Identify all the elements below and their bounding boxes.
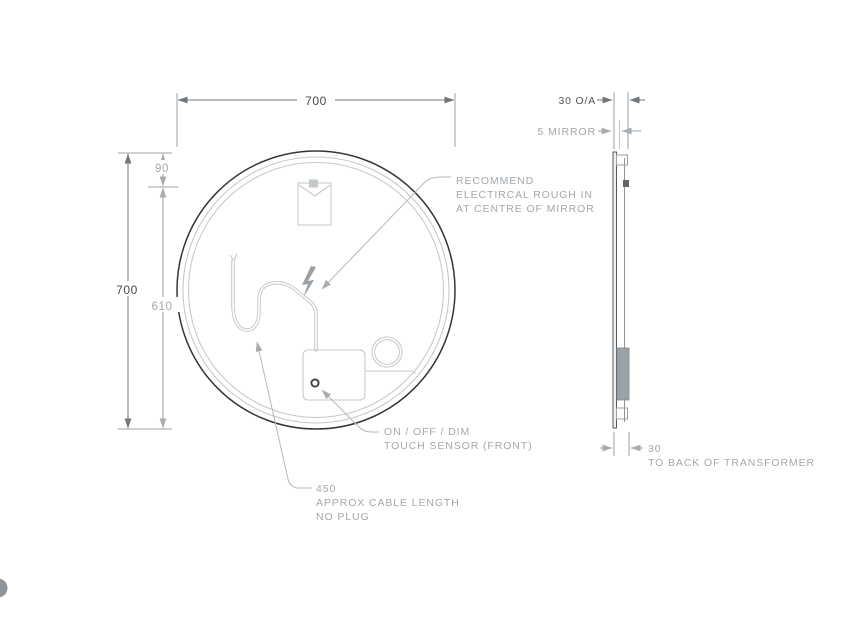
cable-line-1: 450 <box>316 483 336 495</box>
leader-line <box>257 342 312 488</box>
dim-transformer-depth: 30 TO BACK OF TRANSFORMER <box>600 432 815 469</box>
touch-sensor-dot <box>311 379 318 386</box>
side-view: 30 O/A 5 MIRROR 30 TO BACK OF TRANSFORME… <box>537 92 815 469</box>
hook-peg-profile <box>623 180 629 187</box>
mirror-dimension-drawing: 700 700 90 610 RECOMMEND ELECTIRCAL <box>0 0 859 618</box>
cable-frayed-end <box>230 254 237 260</box>
dim-mirror-thickness: 5 MIRROR <box>537 120 641 149</box>
transformer-block <box>617 348 629 400</box>
mirror-panel-profile <box>613 152 617 428</box>
dim-below-hook-610: 610 <box>145 188 181 428</box>
page-edge-dot <box>0 579 8 598</box>
rough-in-line-1: RECOMMEND <box>456 175 534 187</box>
dim-height-label: 700 <box>116 283 138 297</box>
power-cable <box>230 254 316 350</box>
driver-box <box>303 350 365 400</box>
cable-line-inner <box>233 261 316 350</box>
bracket-plate <box>298 183 331 225</box>
annotation-touch-sensor: ON / OFF / DIM TOUCH SENSOR (FRONT) <box>322 390 532 452</box>
touch-sensor-line-2: TOUCH SENSOR (FRONT) <box>384 440 532 452</box>
dim-overall-depth: 30 O/A <box>559 92 645 149</box>
leader-line <box>322 177 451 289</box>
cable-line-2: APPROX CABLE LENGTH <box>316 497 460 509</box>
annotation-rough-in: RECOMMEND ELECTIRCAL ROUGH IN AT CENTRE … <box>322 175 595 289</box>
touch-sensor-line-1: ON / OFF / DIM <box>384 426 470 438</box>
transformer-note-label: TO BACK OF TRANSFORMER <box>648 457 815 469</box>
coil-lead-line <box>365 371 415 374</box>
front-view: 700 700 90 610 RECOMMEND ELECTIRCAL <box>110 92 595 523</box>
dim-width-700: 700 <box>177 92 455 147</box>
dim-width-label: 700 <box>305 94 327 108</box>
dim-hook-offset-90: 90 <box>148 154 178 187</box>
lightning-bolt-icon <box>302 266 316 298</box>
hook-peg <box>309 180 318 188</box>
top-bracket-profile <box>617 155 628 165</box>
dim-hook-label: 90 <box>155 163 169 175</box>
rough-in-line-2: ELECTIRCAL ROUGH IN <box>456 189 593 201</box>
dim-below-hook-label: 610 <box>152 301 173 313</box>
dim-overall-label: 30 O/A <box>559 95 596 107</box>
cable-line-3: NO PLUG <box>316 511 370 523</box>
cable-line-outer <box>233 261 316 350</box>
hanging-bracket <box>298 180 331 226</box>
cable-coil-outer <box>372 337 402 367</box>
bottom-bracket-profile <box>617 408 628 419</box>
cable-coil-inner <box>375 340 400 365</box>
dim-transformer-label: 30 <box>648 443 661 455</box>
technical-drawing-page: 700 700 90 610 RECOMMEND ELECTIRCAL <box>0 0 859 618</box>
dim-mirror-label: 5 MIRROR <box>537 126 596 138</box>
rough-in-line-3: AT CENTRE OF MIRROR <box>456 203 595 215</box>
